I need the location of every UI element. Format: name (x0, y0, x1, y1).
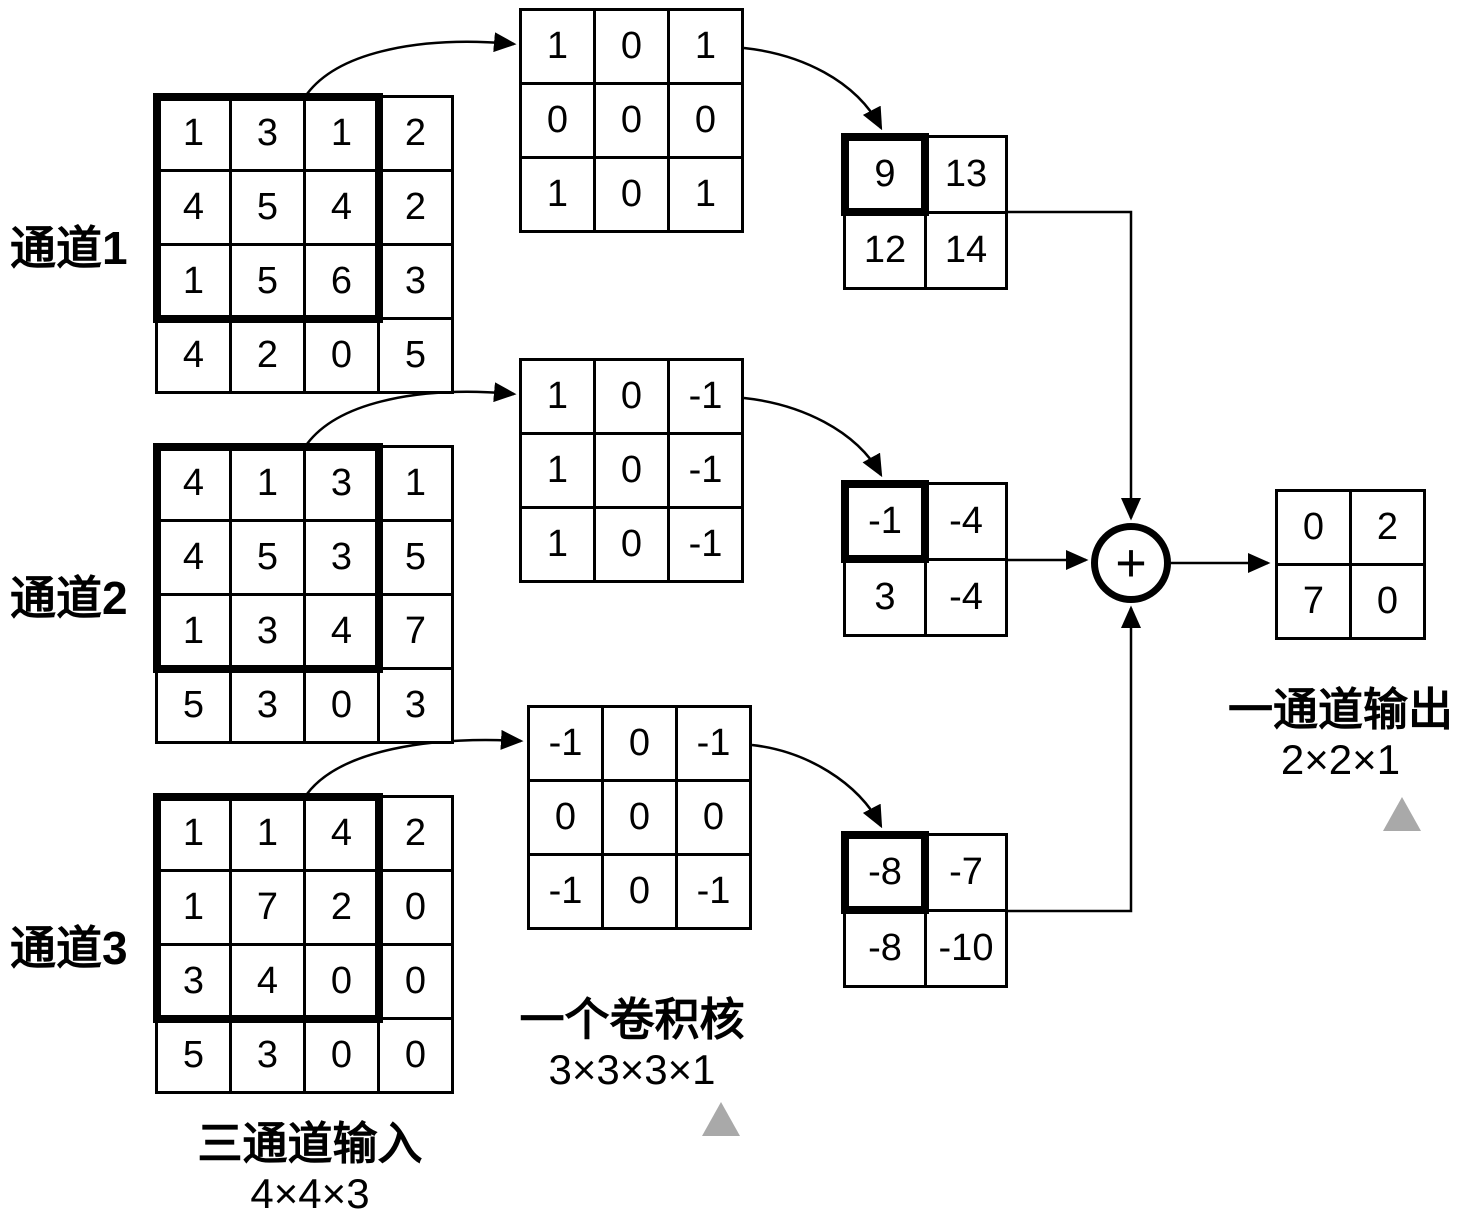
channel-3-matrix: 1142172034005300 (155, 795, 454, 1094)
matrix-cell: 3 (232, 596, 303, 667)
matrix-cell: 4 (306, 596, 377, 667)
input-caption-dims: 4×4×3 (140, 1170, 480, 1218)
matrix-cell: 1 (522, 509, 593, 580)
matrix-cell: 0 (306, 946, 377, 1017)
output-caption-title: 一通道输出 (1213, 684, 1462, 736)
matrix-cell: -1 (670, 509, 741, 580)
matrix-cell: 0 (596, 361, 667, 432)
matrix-cell: 1 (158, 596, 229, 667)
matrix-cell: 2 (380, 98, 451, 169)
kernel-slice-2: 10-110-110-1 (519, 358, 744, 583)
matrix-cell: 0 (380, 872, 451, 943)
matrix-cell: 3 (306, 522, 377, 593)
matrix-cell: 5 (380, 522, 451, 593)
matrix-cell: 2 (306, 872, 377, 943)
matrix-cell: 6 (306, 246, 377, 317)
matrix-cell: 1 (670, 11, 741, 82)
matrix-cell: 1 (158, 872, 229, 943)
arrow-kernel3-to-partial3 (752, 745, 881, 826)
matrix-cell: -8 (846, 836, 924, 909)
matrix-cell: -1 (670, 435, 741, 506)
matrix-cell: -4 (927, 561, 1005, 634)
matrix-cell: 0 (604, 782, 675, 853)
matrix-cell: 1 (670, 159, 741, 230)
matrix-cell: 1 (380, 448, 451, 519)
matrix-cell: -7 (927, 836, 1005, 909)
matrix-cell: 3 (232, 98, 303, 169)
arrow-channel1-to-kernel1 (307, 42, 514, 94)
arrow-kernel2-to-partial2 (744, 398, 881, 475)
matrix-cell: -1 (678, 708, 749, 779)
matrix-cell: 7 (380, 596, 451, 667)
matrix-cell: 4 (158, 320, 229, 391)
matrix-cell: 3 (232, 1020, 303, 1091)
channel-2-matrix: 4131453513475303 (155, 445, 454, 744)
matrix-cell: 5 (380, 320, 451, 391)
matrix-cell: 7 (1278, 566, 1349, 637)
matrix-cell: 3 (380, 670, 451, 741)
matrix-cell: 0 (596, 85, 667, 156)
matrix-cell: 1 (522, 159, 593, 230)
arrow-kernel1-to-partial1 (744, 48, 881, 128)
channel-1-matrix: 1312454215634205 (155, 95, 454, 394)
matrix-cell: -1 (846, 485, 924, 558)
matrix-cell: -1 (530, 856, 601, 927)
matrix-cell: 1 (306, 98, 377, 169)
channel-3-label: 通道3 (10, 921, 150, 975)
matrix-cell: 4 (306, 798, 377, 869)
matrix-cell: 4 (306, 172, 377, 243)
kernel-slice-3: -10-1000-10-1 (527, 705, 752, 930)
matrix-cell: 0 (306, 670, 377, 741)
matrix-cell: 0 (530, 782, 601, 853)
sum-node: + (1091, 523, 1171, 603)
arrow-channel2-to-kernel2 (307, 392, 514, 444)
matrix-cell: 0 (306, 320, 377, 391)
kernel-caption-dims: 3×3×3×1 (482, 1046, 782, 1094)
plus-icon: + (1115, 532, 1147, 594)
matrix-cell: 5 (232, 246, 303, 317)
matrix-cell: 0 (1352, 566, 1423, 637)
matrix-cell: 0 (306, 1020, 377, 1091)
matrix-cell: 4 (158, 448, 229, 519)
matrix-cell: 0 (380, 1020, 451, 1091)
partial-result-1: 9131214 (843, 135, 1008, 290)
matrix-cell: 1 (158, 798, 229, 869)
matrix-cell: 4 (158, 172, 229, 243)
matrix-cell: 5 (232, 172, 303, 243)
matrix-cell: -1 (530, 708, 601, 779)
matrix-cell: 3 (306, 448, 377, 519)
matrix-cell: 4 (158, 522, 229, 593)
matrix-cell: 5 (232, 522, 303, 593)
input-caption: 三通道输入 4×4×3 (140, 1118, 480, 1218)
matrix-cell: -10 (927, 912, 1005, 985)
kernel-caption-title: 一个卷积核 (482, 994, 782, 1046)
matrix-cell: 3 (846, 561, 924, 634)
matrix-cell: 7 (232, 872, 303, 943)
matrix-cell: 2 (232, 320, 303, 391)
matrix-cell: -1 (678, 856, 749, 927)
matrix-cell: 1 (522, 11, 593, 82)
matrix-cell: 0 (678, 782, 749, 853)
matrix-cell: -4 (927, 485, 1005, 558)
matrix-cell: 2 (1352, 492, 1423, 563)
matrix-cell: 2 (380, 172, 451, 243)
matrix-cell: 0 (596, 11, 667, 82)
matrix-cell: 3 (380, 246, 451, 317)
matrix-cell: 0 (670, 85, 741, 156)
output-matrix: 0270 (1275, 489, 1426, 640)
matrix-cell: 0 (596, 159, 667, 230)
matrix-cell: 1 (232, 448, 303, 519)
matrix-cell: 1 (522, 361, 593, 432)
arrow-partial3-to-sum (1008, 608, 1131, 911)
partial-result-2: -1-43-4 (843, 482, 1008, 637)
arrow-channel3-to-kernel3 (307, 740, 521, 794)
matrix-cell: -8 (846, 912, 924, 985)
output-caption-dims: 2×2×1 (1213, 736, 1462, 784)
kernel-caption: 一个卷积核 3×3×3×1 (482, 994, 782, 1094)
output-triangle-marker (1383, 797, 1421, 831)
convolution-diagram: 通道1 通道2 通道3 1312454215634205 41314535134… (0, 0, 1462, 1228)
matrix-cell: -1 (670, 361, 741, 432)
matrix-cell: 3 (158, 946, 229, 1017)
channel-2-label: 通道2 (10, 571, 150, 625)
output-caption: 一通道输出 2×2×1 (1213, 684, 1462, 784)
matrix-cell: 9 (846, 138, 924, 211)
matrix-cell: 3 (232, 670, 303, 741)
matrix-cell: 0 (1278, 492, 1349, 563)
matrix-cell: 1 (158, 98, 229, 169)
matrix-cell: 0 (604, 708, 675, 779)
kernel-slice-1: 101000101 (519, 8, 744, 233)
input-caption-title: 三通道输入 (140, 1118, 480, 1170)
matrix-cell: 0 (380, 946, 451, 1017)
arrow-partial1-to-sum (1008, 212, 1131, 518)
matrix-cell: 5 (158, 670, 229, 741)
matrix-cell: 1 (158, 246, 229, 317)
matrix-cell: 0 (522, 85, 593, 156)
matrix-cell: 5 (158, 1020, 229, 1091)
matrix-cell: 4 (232, 946, 303, 1017)
matrix-cell: 0 (596, 509, 667, 580)
matrix-cell: 14 (927, 214, 1005, 287)
matrix-cell: 12 (846, 214, 924, 287)
matrix-cell: 1 (522, 435, 593, 506)
matrix-cell: 0 (604, 856, 675, 927)
channel-1-label: 通道1 (10, 221, 150, 275)
matrix-cell: 2 (380, 798, 451, 869)
partial-result-3: -8-7-8-10 (843, 833, 1008, 988)
matrix-cell: 13 (927, 138, 1005, 211)
matrix-cell: 0 (596, 435, 667, 506)
kernel-triangle-marker (702, 1102, 740, 1136)
matrix-cell: 1 (232, 798, 303, 869)
